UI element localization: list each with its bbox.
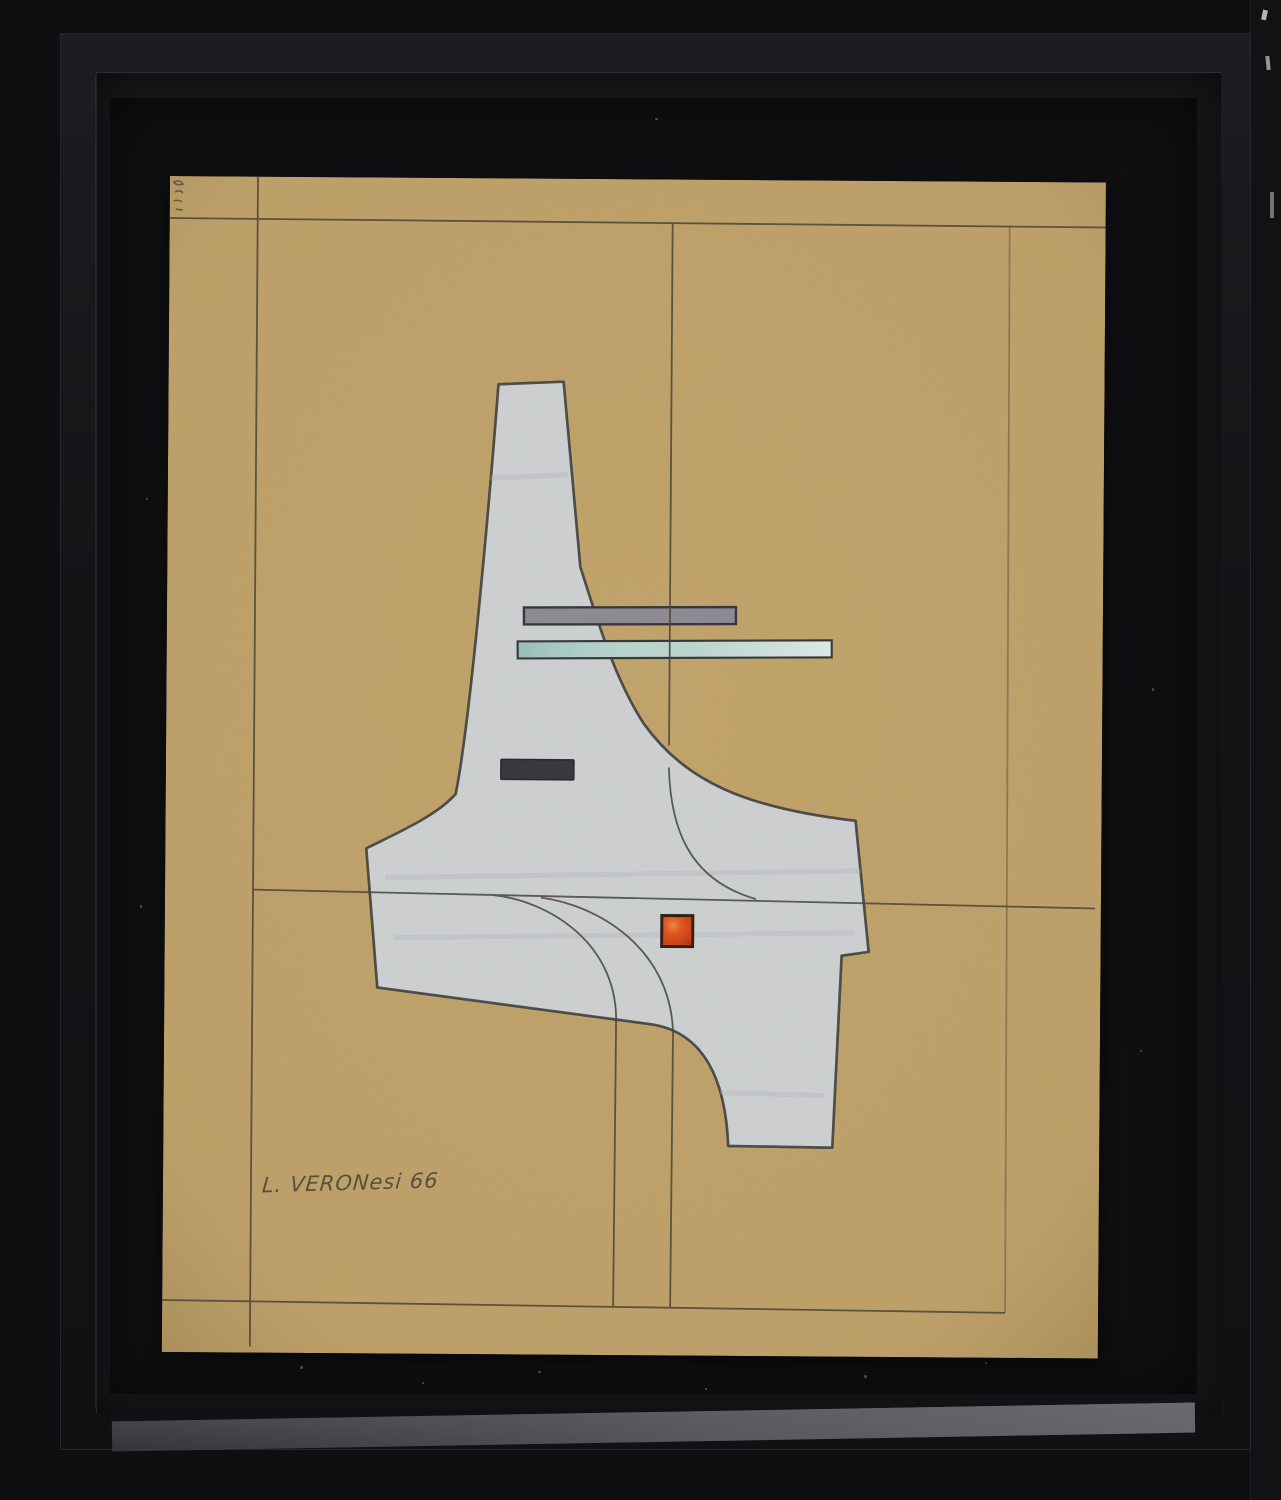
artist-signature: L. VERONesi 66 bbox=[261, 1167, 439, 1197]
dust-speck bbox=[422, 1382, 424, 1384]
dust-speck bbox=[1140, 1050, 1142, 1052]
dust-speck bbox=[864, 1375, 867, 1378]
dust-speck bbox=[538, 1371, 541, 1373]
framed-artwork-photo: L. VERONesi 66 bbox=[0, 0, 1281, 1500]
dust-speck bbox=[655, 118, 658, 120]
dark-rectangle bbox=[501, 759, 574, 780]
frame-outer-right-edge bbox=[1250, 0, 1281, 1500]
artwork-drawing: L. VERONesi 66 bbox=[162, 176, 1106, 1359]
orange-square bbox=[662, 915, 693, 946]
paint-chip bbox=[1270, 192, 1274, 218]
teal-bar bbox=[518, 640, 832, 658]
dust-speck bbox=[985, 1362, 987, 1364]
dust-speck bbox=[1152, 688, 1154, 691]
gray-bar bbox=[524, 607, 736, 624]
dust-speck bbox=[300, 1366, 303, 1369]
artwork-paper: L. VERONesi 66 bbox=[162, 176, 1106, 1359]
dust-speck bbox=[140, 905, 142, 908]
dust-speck bbox=[705, 1388, 707, 1390]
dust-speck bbox=[146, 498, 148, 500]
